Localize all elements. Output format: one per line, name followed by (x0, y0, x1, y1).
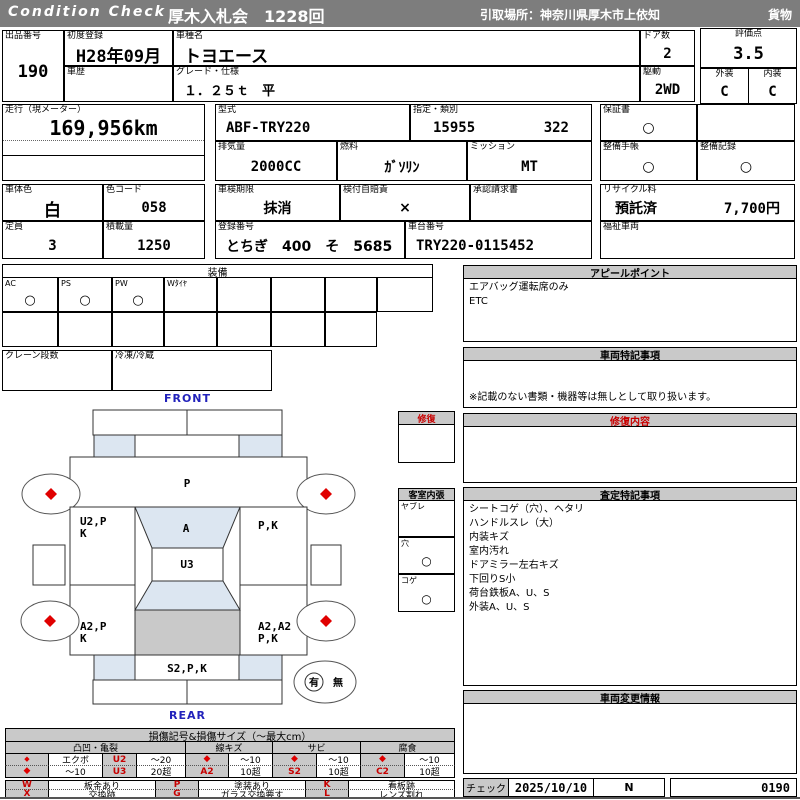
field-first-reg-value: H28年09月 (65, 42, 172, 67)
zone-hood: P (184, 477, 191, 490)
field-capacity: 定員 3 (2, 221, 103, 259)
field-displacement: 排気量 2000CC (215, 141, 337, 181)
equipment-pw-value: ○ (113, 289, 163, 311)
equipment-ac-value: ○ (3, 289, 57, 311)
field-warranty: 保証書 ○ (600, 104, 697, 141)
field-history: 車歴 (64, 66, 173, 102)
field-body-color-label: 車体色 (3, 185, 102, 196)
field-maintenance-book: 整備手帳 ○ (600, 141, 697, 181)
field-model-code-value: ABF-TRY220 (216, 116, 409, 140)
legend-dent-r2-size-a: ～10 (48, 765, 103, 778)
equipment-ps-label: PS (59, 278, 111, 289)
cabin-lining-burn-value: ○ (399, 586, 454, 611)
equipment-empty-cell (217, 277, 271, 312)
field-lot-value: 190 (3, 42, 63, 101)
special-notes-body: ※記載のない書類・機器等は無しとして取り扱います。 (463, 360, 797, 408)
field-registration-no-value: とちぎ 400 そ 5685 (216, 233, 404, 258)
cowl-right-panel (239, 435, 282, 457)
field-history-label: 車歴 (65, 67, 172, 78)
special-notes-footnote: ※記載のない書類・機器等は無しとして取り扱います。 (469, 391, 791, 405)
field-interior-label: 内装 (749, 69, 796, 80)
zone-left-door-2: K (80, 527, 87, 540)
zone-left-bed-2: K (80, 632, 87, 645)
cabin-lining-burn-label: コゲ (399, 575, 454, 586)
field-body-color-value: 白 (3, 196, 102, 221)
field-recycle-fee: リサイクル料 預託済 7,700円 (600, 184, 795, 221)
equipment-reefer-label: 冷凍/冷蔵 (113, 351, 271, 362)
legend-dent-marker: ◆ (5, 765, 49, 778)
field-doors: ドア数 2 (640, 30, 695, 66)
field-maintenance-record: 整備記録 ○ (697, 141, 795, 181)
legend-title: 損傷記号&損傷サイズ（～最大cm） (5, 728, 455, 742)
equipment-ps: PS ○ (58, 277, 112, 312)
repair-box-header: 修復 (398, 411, 455, 425)
equipment-crane: クレーン段数 (2, 350, 112, 391)
equipment-reefer: 冷凍/冷蔵 (112, 350, 272, 391)
field-model-name-value: トヨエース (174, 42, 639, 67)
field-doors-label: ドア数 (641, 31, 694, 42)
field-welfare-vehicle: 福祉車両 (600, 221, 795, 259)
equipment-empty-cell (325, 277, 377, 312)
field-color-code-value: 058 (104, 196, 204, 220)
field-designation-no2: 322 (544, 120, 569, 136)
checker-date: 2025/10/10 (508, 778, 594, 797)
appeal-body: エアバッグ運転席のみ ETC (463, 278, 797, 342)
equipment-empty-cell (112, 312, 164, 347)
zone-right-door: P,K (258, 519, 278, 532)
equipment-wtire: Wﾀｲﾔ (164, 277, 217, 312)
field-designation-label: 指定・類別 (411, 105, 591, 116)
repair-details-body (463, 426, 797, 483)
field-fuel-value: ｶﾞｿﾘﾝ (338, 153, 466, 180)
field-inspection-expiry: 車検期限 抹消 (215, 184, 340, 221)
field-drive-value: 2WD (641, 78, 694, 101)
equipment-ac-label: AC (3, 278, 57, 289)
equipment-ps-value: ○ (59, 289, 111, 311)
assessment-line: ドアミラー左右キズ (469, 559, 791, 573)
pickup-location: 引取場所：神奈川県厚木市上依知 (480, 6, 660, 23)
cabin-lining-hole: 穴 ○ (398, 537, 455, 574)
field-chassis-no: 車台番号 TRY220-0115452 (405, 221, 592, 259)
field-mission-label: ミッション (468, 142, 591, 153)
equipment-empty-cell (271, 312, 325, 347)
field-recycle-fee-status: 預託済 (615, 198, 657, 218)
assessment-line: ハンドルスレ（大） (469, 517, 791, 531)
change-info-body (463, 703, 797, 774)
mileage-divider-dotted (3, 140, 204, 155)
cabin-lining-tear: ヤブレ (398, 500, 455, 537)
field-welfare-vehicle-value (601, 233, 794, 258)
equipment-empty-cell (164, 312, 217, 347)
field-load-capacity-label: 積載量 (104, 222, 204, 233)
damage-diamond-icon: ◆ (204, 755, 211, 764)
accident-yes: 有 (309, 676, 319, 689)
field-designation: 指定・類別 15955 322 (410, 104, 592, 141)
equipment-empty-cell (325, 312, 377, 347)
equipment-empty-cell (58, 312, 112, 347)
special-notes-header: 車両特記事項 (463, 347, 797, 361)
damage-diamond-icon: ◆ (24, 755, 29, 764)
field-displacement-value: 2000CC (216, 153, 336, 180)
field-first-reg-label: 初度登録 (65, 31, 172, 42)
field-chassis-no-label: 車台番号 (406, 222, 591, 233)
legend-corrosion-r2-code: C2 (360, 765, 405, 778)
equipment-pw-label: PW (113, 278, 163, 289)
assessment-line: シートコゲ（穴）、ヘタリ (469, 503, 791, 517)
field-mileage: 走行（現メーター） 169,956km (2, 104, 205, 181)
legend-scratch-r2-code: A2 (185, 765, 229, 778)
field-load-capacity-value: 1250 (104, 233, 204, 258)
auction-title: 厚木入札会 1228回 (168, 3, 325, 27)
field-maintenance-record-label: 整備記録 (698, 142, 794, 153)
field-drive: 駆動 2WD (640, 66, 695, 102)
field-exterior-value: C (701, 80, 748, 103)
field-liability-insurance-label: 検付自賠責 (341, 185, 469, 196)
checker-inspector: N (593, 778, 665, 797)
cabin-lining-tear-label: ヤブレ (399, 501, 454, 512)
field-displacement-label: 排気量 (216, 142, 336, 153)
legend-dent-r2-size: 20超 (136, 765, 186, 778)
field-grade-value: １．２５ｔ 平 (174, 78, 639, 101)
cowl-left-panel (94, 435, 135, 457)
field-registration-no: 登録番号 とちぎ 400 そ 5685 (215, 221, 405, 259)
field-fuel-label: 燃料 (338, 142, 466, 153)
field-exterior-label: 外装 (701, 69, 748, 80)
equipment-reefer-value (113, 362, 271, 390)
assessment-notes-body: シートコゲ（穴）、ヘタリ ハンドルスレ（大） 内装キズ 室内汚れ ドアミラー左右… (463, 500, 797, 686)
field-welfare-vehicle-label: 福祉車両 (601, 222, 794, 233)
equipment-crane-label: クレーン段数 (3, 351, 111, 362)
diagram-front-label: FRONT (40, 392, 335, 405)
appeal-line: エアバッグ運転席のみ (469, 281, 791, 295)
field-mileage-value: 169,956km (3, 116, 204, 140)
field-first-reg: 初度登録 H28年09月 (64, 30, 173, 66)
field-model-code: 型式 ABF-TRY220 (215, 104, 410, 141)
assessment-line: 内装キズ (469, 531, 791, 545)
field-exterior: 外装 C (700, 68, 749, 104)
legend-corrosion-r2-size: 10超 (404, 765, 455, 778)
cabin-lining-tear-value (399, 512, 454, 536)
zone-right-bed-2: P,K (258, 632, 278, 645)
field-color-code-label: 色コード (104, 185, 204, 196)
assessment-notes-header: 査定特記事項 (463, 487, 797, 501)
checker-label: チェック (463, 778, 509, 797)
legend-rust-r2-size: 10超 (316, 765, 361, 778)
equipment-empty-cell (217, 312, 271, 347)
field-recycle-fee-amount: 7,700円 (724, 198, 780, 218)
field-warranty-value: ○ (601, 116, 696, 140)
appeal-header: アピールポイント (463, 265, 797, 279)
equipment-empty-cell (377, 277, 433, 312)
field-model-name-label: 車種名 (174, 31, 639, 42)
field-maintenance-book-label: 整備手帳 (601, 142, 696, 153)
equipment-empty-cell (2, 312, 58, 347)
field-warranty-label: 保証書 (601, 105, 696, 116)
equipment-pw: PW ○ (112, 277, 164, 312)
change-info-header: 車両変更情報 (463, 690, 797, 704)
field-lot-label: 出品番号 (3, 31, 63, 42)
assessment-line: 外装A、U、S (469, 601, 791, 615)
cabin-lining-burn: コゲ ○ (398, 574, 455, 612)
field-grade: グレード・仕様 １．２５ｔ 平 (173, 66, 640, 102)
field-approval-request-value (471, 196, 591, 220)
field-mission-value: MT (468, 153, 591, 180)
equipment-header: 装備 (2, 264, 433, 278)
right-side-guard (311, 545, 341, 585)
cargo-bed (135, 610, 240, 655)
title-bar: Condition Check 厚木入札会 1228回 引取場所：神奈川県厚木市… (0, 0, 800, 27)
sheet-number: 0190 (670, 778, 797, 797)
field-interior: 内装 C (748, 68, 797, 104)
field-drive-label: 駆動 (641, 67, 694, 78)
assessment-line: 荷台鉄板A、U、S (469, 587, 791, 601)
rear-left-corner (94, 655, 135, 680)
field-doc-empty (697, 104, 795, 141)
mileage-divider-solid (3, 155, 204, 180)
field-approval-request-label: 承認請求書 (471, 185, 591, 196)
field-inspection-expiry-value: 抹消 (216, 196, 339, 220)
condition-check-sheet: Condition Check 厚木入札会 1228回 引取場所：神奈川県厚木市… (0, 0, 800, 800)
legend-rust-r2-code: S2 (272, 765, 317, 778)
field-body-color: 車体色 白 (2, 184, 103, 221)
field-maintenance-record-value: ○ (698, 153, 794, 180)
assessment-line: 下回りS小 (469, 573, 791, 587)
field-recycle-fee-label: リサイクル料 (601, 185, 794, 196)
field-model-name: 車種名 トヨエース (173, 30, 640, 66)
assessment-line: 室内汚れ (469, 545, 791, 559)
equipment-crane-value (3, 362, 111, 390)
brand-logo: Condition Check (8, 4, 166, 20)
field-interior-value: C (749, 80, 796, 103)
field-history-value (65, 78, 172, 101)
field-inspection-expiry-label: 車検期限 (216, 185, 339, 196)
cabin-lining-hole-label: 穴 (399, 538, 454, 549)
field-lot: 出品番号 190 (2, 30, 64, 102)
accident-no: 無 (333, 676, 343, 689)
field-score-value: 3.5 (701, 40, 796, 67)
appeal-line: ETC (469, 295, 791, 309)
legend-dent-r2-code: U3 (102, 765, 137, 778)
field-registration-no-label: 登録番号 (216, 222, 404, 233)
rear-window-panel (135, 581, 240, 610)
equipment-wtire-value (165, 289, 216, 311)
equipment-ac: AC ○ (2, 277, 58, 312)
field-load-capacity: 積載量 1250 (103, 221, 205, 259)
truck-diagram: P A U3 U2,P K P,K A2,P K A2,A2 P,K S2,P,… (0, 405, 460, 705)
rear-right-corner (239, 655, 282, 680)
diagram-rear-label: REAR (40, 709, 335, 722)
equipment-wtire-label: Wﾀｲﾔ (165, 278, 216, 289)
field-mission: ミッション MT (467, 141, 592, 181)
zone-rear-panel: S2,P,K (167, 662, 207, 675)
field-approval-request: 承認請求書 (470, 184, 592, 221)
field-chassis-no-value: TRY220-0115452 (406, 233, 591, 258)
field-color-code: 色コード 058 (103, 184, 205, 221)
field-liability-insurance: 検付自賠責 × (340, 184, 470, 221)
zone-roof: U3 (180, 558, 193, 571)
field-score-label: 評価点 (701, 29, 796, 40)
field-score: 評価点 3.5 (700, 28, 797, 68)
repair-box-body (398, 424, 455, 463)
field-grade-label: グレード・仕様 (174, 67, 639, 78)
left-side-guard (33, 545, 65, 585)
field-mileage-label: 走行（現メーター） (3, 105, 204, 116)
damage-diamond-icon: ◆ (24, 767, 31, 776)
repair-details-header: 修復内容 (463, 413, 797, 427)
field-liability-insurance-value: × (341, 196, 469, 220)
zone-windshield: A (183, 522, 190, 535)
bottom-rule (0, 797, 800, 799)
field-capacity-label: 定員 (3, 222, 102, 233)
field-model-code-label: 型式 (216, 105, 409, 116)
accident-flag-ellipse (294, 661, 356, 703)
cabin-lining-hole-value: ○ (399, 549, 454, 573)
vehicle-category: 貨物 (768, 6, 792, 23)
legend-scratch-r2-size: 10超 (228, 765, 273, 778)
equipment-empty-cell (271, 277, 325, 312)
field-doors-value: 2 (641, 42, 694, 65)
field-capacity-value: 3 (3, 233, 102, 258)
field-designation-no1: 15955 (433, 120, 475, 136)
damage-diamond-icon: ◆ (379, 755, 386, 764)
field-maintenance-book-value: ○ (601, 153, 696, 180)
field-fuel: 燃料 ｶﾞｿﾘﾝ (337, 141, 467, 181)
damage-diamond-icon: ◆ (291, 755, 298, 764)
